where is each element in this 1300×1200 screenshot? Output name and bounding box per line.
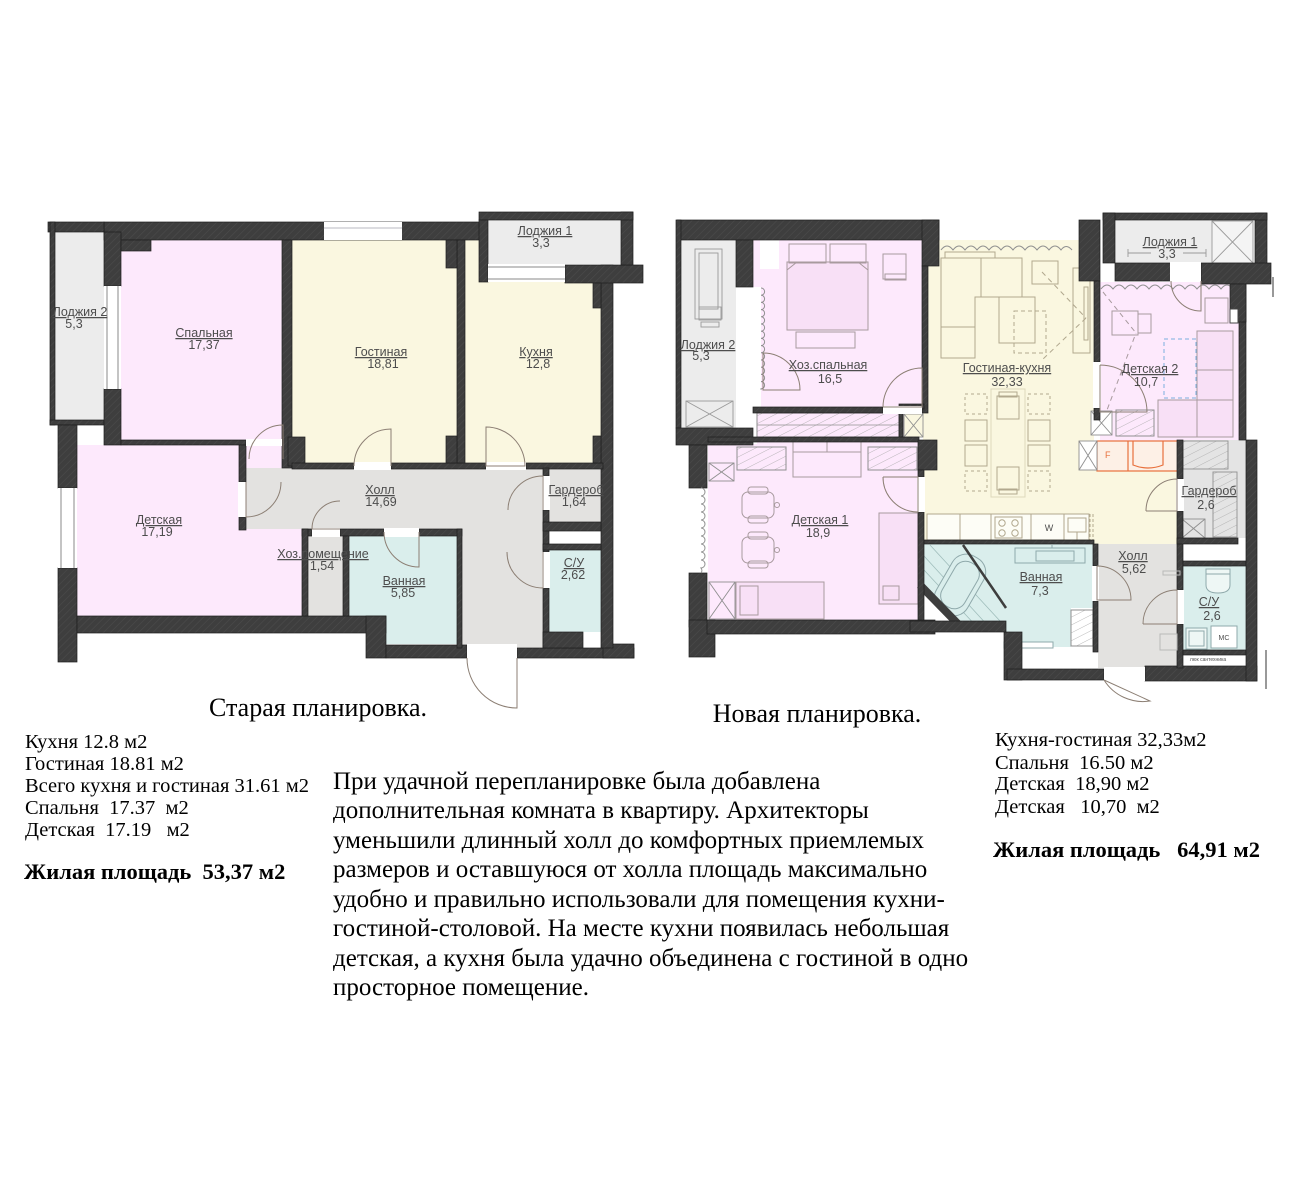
svg-text:Всего кухня и гостиная 31.61 м: Всего кухня и гостиная 31.61 м2 <box>25 775 309 797</box>
svg-text:3,3: 3,3 <box>532 236 549 250</box>
svg-text:Гостиная-кухня: Гостиная-кухня <box>963 361 1051 375</box>
svg-text:Детская 10,70 м2: Детская 10,70 м2 <box>995 796 1160 818</box>
svg-text:2,6: 2,6 <box>1197 498 1214 512</box>
svg-text:удобно и правильно использовал: удобно и правильно использовали для поме… <box>333 886 945 913</box>
svg-text:5,85: 5,85 <box>391 586 415 600</box>
svg-text:W: W <box>1045 523 1054 533</box>
svg-text:17,19: 17,19 <box>141 525 172 539</box>
svg-text:Кухня 12.8 м2: Кухня 12.8 м2 <box>25 731 147 753</box>
svg-text:5,3: 5,3 <box>65 317 82 331</box>
svg-text:Новая планировка.: Новая планировка. <box>713 699 922 728</box>
svg-text:гостиной-столовой. На месте ку: гостиной-столовой. На месте кухни появил… <box>333 915 950 942</box>
svg-text:Детская 1: Детская 1 <box>792 513 849 527</box>
svg-text:7,3: 7,3 <box>1031 584 1048 598</box>
svg-text:Гостиная 18.81 м2: Гостиная 18.81 м2 <box>25 753 184 775</box>
svg-text:размеров и оставшуюся от холла: размеров и оставшуюся от холла площадь м… <box>333 856 927 883</box>
svg-text:детская, а кухня была удачно о: детская, а кухня была удачно объединена … <box>333 945 968 972</box>
svg-text:дополнительная комната в кварт: дополнительная комната в квартиру. Архит… <box>333 797 869 824</box>
svg-text:Ванная: Ванная <box>1020 570 1063 584</box>
svg-text:Жилая площадь 53,37 м2: Жилая площадь 53,37 м2 <box>24 859 285 884</box>
svg-text:Спальня 17.37 м2: Спальня 17.37 м2 <box>25 797 189 819</box>
svg-text:Детская 17.19 м2: Детская 17.19 м2 <box>25 819 190 841</box>
svg-text:Кухня-гостиная 32,33м2: Кухня-гостиная 32,33м2 <box>995 729 1207 751</box>
svg-text:1,64: 1,64 <box>562 495 586 509</box>
svg-text:МС: МС <box>1219 635 1230 642</box>
svg-text:12,8: 12,8 <box>526 357 550 371</box>
svg-text:17,37: 17,37 <box>188 338 219 352</box>
svg-text:С/У: С/У <box>1199 595 1220 609</box>
svg-text:Детская 2: Детская 2 <box>1122 362 1179 376</box>
svg-text:1,54: 1,54 <box>310 559 334 573</box>
svg-text:Холл: Холл <box>1118 549 1147 563</box>
svg-text:32,33: 32,33 <box>991 375 1022 389</box>
svg-text:2,6: 2,6 <box>1203 609 1220 623</box>
svg-text:Детская 18,90 м2: Детская 18,90 м2 <box>995 773 1150 795</box>
svg-text:люк сантехника: люк сантехника <box>1190 657 1227 663</box>
svg-text:уменьшили длинный холл до комф: уменьшили длинный холл до комфортных при… <box>333 827 925 854</box>
svg-text:5,62: 5,62 <box>1122 562 1146 576</box>
svg-text:просторное помещение.: просторное помещение. <box>333 974 589 1001</box>
svg-text:18,9: 18,9 <box>806 526 830 540</box>
svg-text:2,62: 2,62 <box>561 568 585 582</box>
svg-text:F: F <box>1105 450 1111 460</box>
svg-text:14,69: 14,69 <box>365 495 396 509</box>
svg-text:10,7: 10,7 <box>1134 375 1158 389</box>
svg-text:Спальня 16.50 м2: Спальня 16.50 м2 <box>995 752 1154 774</box>
svg-text:16,5: 16,5 <box>818 372 842 386</box>
svg-text:Старая планировка.: Старая планировка. <box>209 693 427 722</box>
svg-text:Жилая площадь 64,91 м2: Жилая площадь 64,91 м2 <box>993 837 1260 862</box>
svg-text:3,3: 3,3 <box>1158 247 1175 261</box>
svg-text:Хоз.спальная: Хоз.спальная <box>789 358 868 372</box>
svg-text:При удачной перепланировке был: При удачной перепланировке была добавлен… <box>333 768 820 795</box>
svg-text:Гардероб: Гардероб <box>1182 484 1237 498</box>
svg-text:5,3: 5,3 <box>692 349 709 363</box>
svg-text:18,81: 18,81 <box>367 357 398 371</box>
